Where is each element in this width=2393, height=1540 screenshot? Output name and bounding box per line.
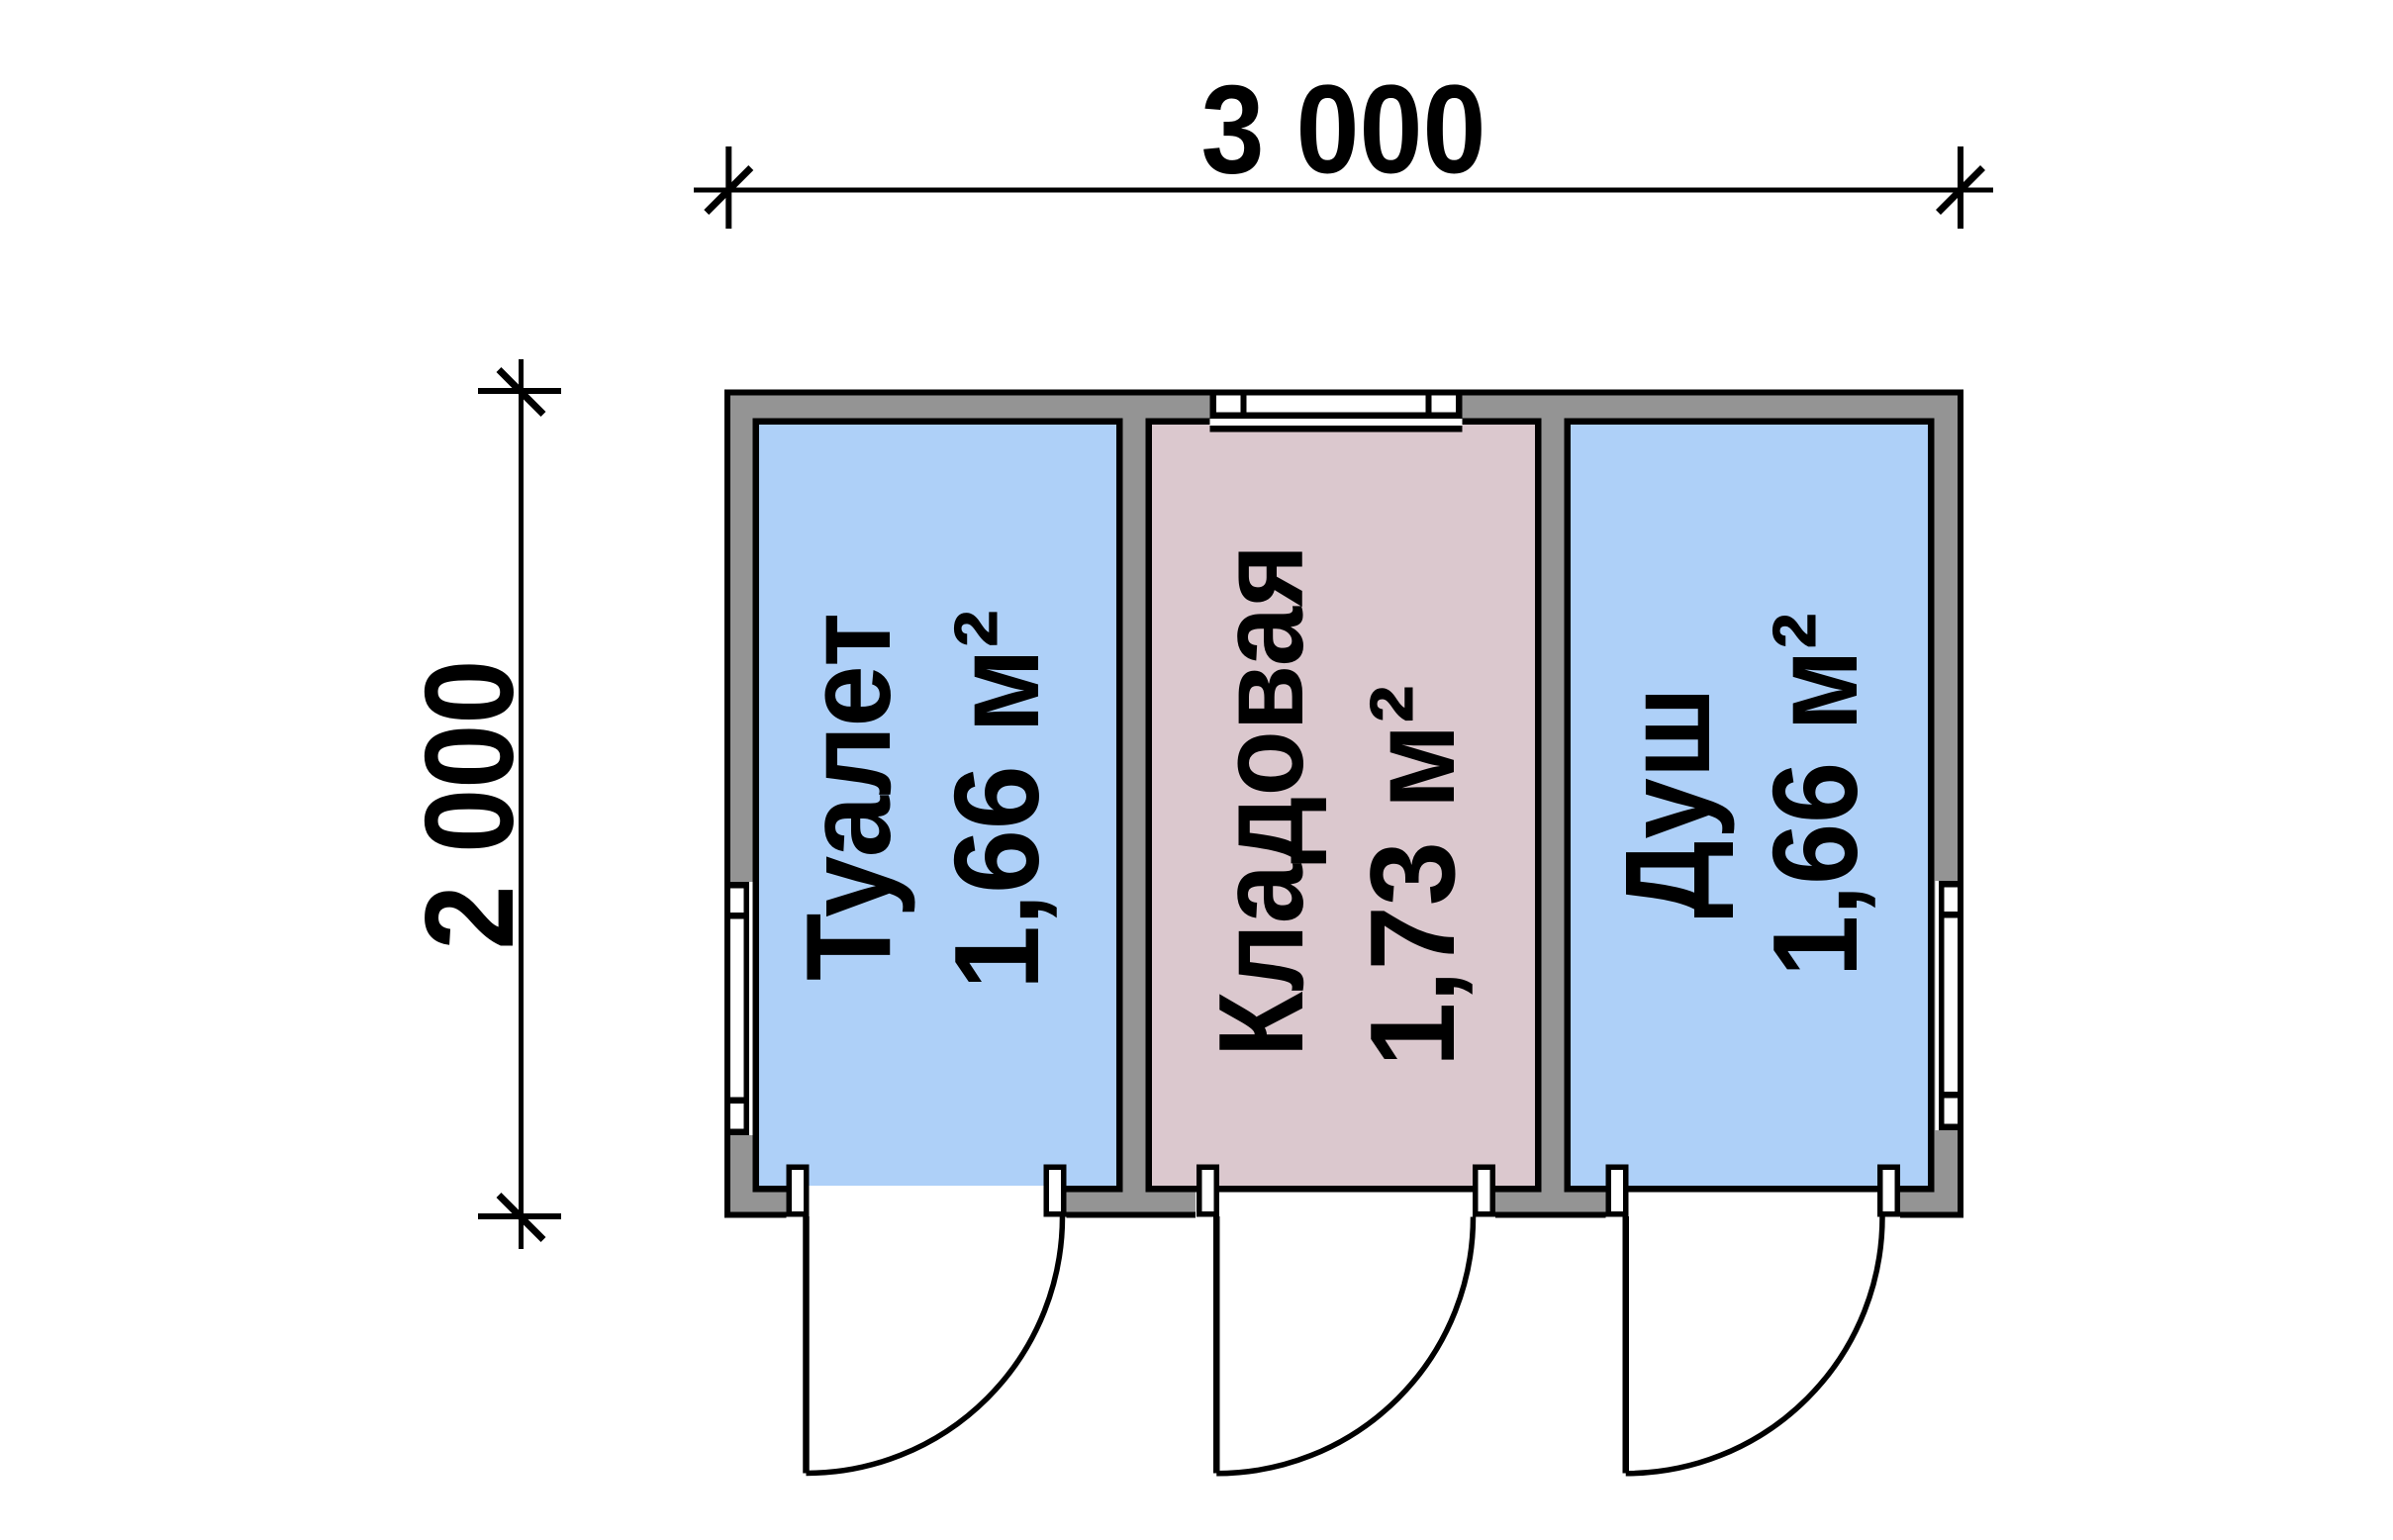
svg-text:Кладовая: Кладовая (1194, 544, 1328, 1057)
svg-text:1,66 м²: 1,66 м² (1748, 613, 1882, 977)
svg-text:2 000: 2 000 (399, 660, 539, 950)
svg-text:3 000: 3 000 (1201, 59, 1486, 200)
svg-text:Туалет: Туалет (781, 613, 915, 981)
svg-text:1,66 м²: 1,66 м² (929, 610, 1064, 990)
svg-text:1,73 м²: 1,73 м² (1345, 685, 1480, 1067)
svg-text:Душ: Душ (1600, 687, 1735, 918)
